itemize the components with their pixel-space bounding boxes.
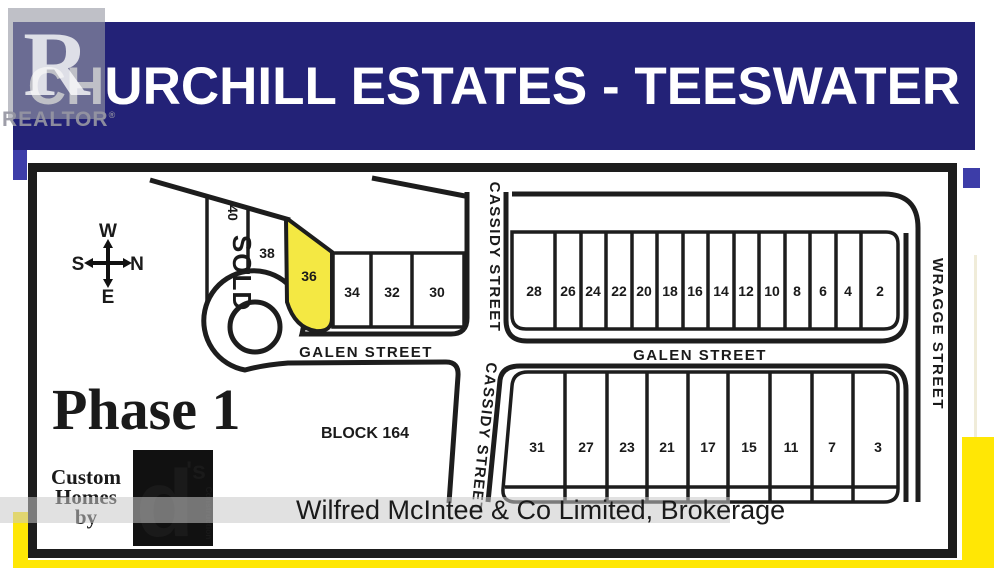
lot-number: 21: [659, 439, 675, 455]
lot-number: 27: [578, 439, 594, 455]
compass-west-label: W: [99, 221, 117, 242]
lot-number: 20: [636, 283, 652, 299]
street-label-galen-east: GALEN STREET: [633, 347, 767, 364]
sold-label: SOLD: [227, 235, 257, 311]
lot-number: 36: [301, 268, 317, 284]
lot-number: 17: [700, 439, 716, 455]
brokerage-watermark-text: Wilfred McIntee & Co Limited, Brokerage: [296, 495, 785, 525]
street-label-galen-west: GALEN STREET: [299, 344, 433, 361]
lot-number: 18: [662, 283, 678, 299]
lot-number: 22: [611, 283, 627, 299]
lot-number: 24: [585, 283, 601, 299]
lot-number: 11: [784, 439, 799, 455]
lot-number: 32: [384, 284, 400, 300]
street-label-cassidy-north: CASSIDY STREET: [486, 182, 503, 333]
lot-number: 31: [529, 439, 545, 455]
lot-number: 28: [526, 283, 542, 299]
lot-number: 23: [619, 439, 635, 455]
compass-south-label: S: [72, 254, 85, 275]
lot-number: 7: [828, 439, 836, 455]
block-label: BLOCK 164: [321, 425, 409, 442]
lot-number: 16: [687, 283, 703, 299]
page: { "header": { "title": "CHURCHILL ESTATE…: [0, 0, 994, 568]
site-plan-svg: 40 SOLD 38 36 34 32 30 28 26 24 22 20 18…: [0, 0, 994, 568]
lot-number: 15: [741, 439, 757, 455]
lot-number: 30: [429, 284, 445, 300]
builder-logo-s: 's: [186, 457, 206, 485]
south-block-lot-numbers: 31 27 23 21 17 15 11 7 3: [529, 439, 882, 455]
compass-east-label: E: [102, 287, 115, 308]
street-label-wragge: WRAGGE STREET: [929, 258, 946, 410]
lot-number: 40: [225, 205, 241, 221]
lot-number: 10: [764, 283, 780, 299]
lot-number: 3: [874, 439, 882, 455]
lot-number: 4: [844, 283, 852, 299]
lot-number: 14: [713, 283, 729, 299]
lot-number: 8: [793, 283, 801, 299]
lot-number: 12: [738, 283, 754, 299]
compass-north-label: N: [130, 254, 144, 275]
phase-label: Phase 1: [52, 377, 241, 442]
lot-number: 38: [259, 245, 275, 261]
lot-number: 34: [344, 284, 360, 300]
lot-number: 2: [876, 283, 884, 299]
lot-number: 26: [560, 283, 576, 299]
lot-number: 6: [819, 283, 827, 299]
